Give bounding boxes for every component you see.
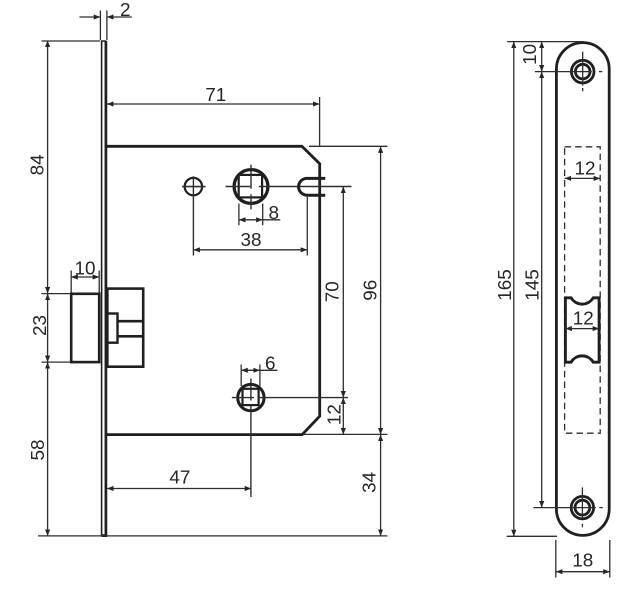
svg-text:58: 58	[28, 439, 49, 460]
svg-text:96: 96	[360, 280, 381, 301]
svg-text:38: 38	[240, 230, 261, 251]
svg-text:6: 6	[265, 353, 276, 374]
svg-text:12: 12	[325, 404, 346, 425]
svg-text:165: 165	[495, 269, 516, 301]
svg-text:70: 70	[323, 281, 344, 302]
svg-text:10: 10	[74, 258, 95, 279]
svg-text:12: 12	[573, 308, 594, 329]
svg-text:47: 47	[169, 467, 190, 488]
svg-text:18: 18	[572, 550, 593, 571]
svg-text:145: 145	[522, 269, 543, 301]
svg-text:12: 12	[574, 159, 595, 180]
svg-text:84: 84	[28, 154, 49, 175]
svg-text:34: 34	[360, 472, 381, 493]
svg-text:23: 23	[30, 315, 51, 336]
svg-text:10: 10	[520, 44, 541, 65]
svg-text:2: 2	[120, 0, 131, 21]
svg-text:71: 71	[205, 85, 226, 106]
svg-text:8: 8	[268, 203, 279, 224]
